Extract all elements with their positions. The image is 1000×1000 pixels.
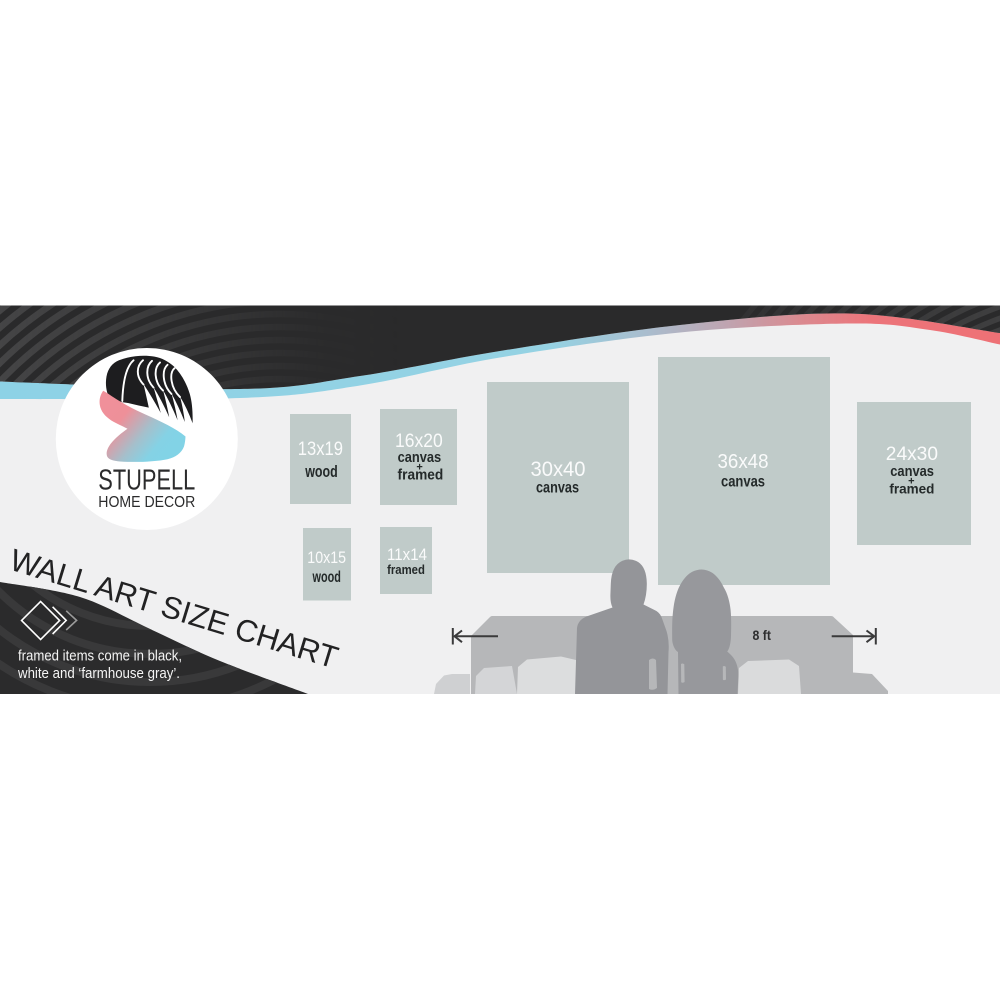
svg-text:16x20: 16x20 xyxy=(395,431,443,452)
svg-text:STUPELL: STUPELL xyxy=(98,465,195,497)
svg-text:framed: framed xyxy=(889,482,934,497)
svg-text:wood: wood xyxy=(312,569,341,586)
svg-text:13x19: 13x19 xyxy=(298,439,343,460)
svg-text:canvas: canvas xyxy=(536,480,579,497)
svg-text:36x48: 36x48 xyxy=(718,451,769,473)
svg-text:white and ‘farmhouse gray’.: white and ‘farmhouse gray’. xyxy=(17,665,180,682)
svg-text:canvas: canvas xyxy=(721,474,765,491)
svg-text:30x40: 30x40 xyxy=(531,458,586,481)
svg-text:HOME DECOR: HOME DECOR xyxy=(98,494,195,511)
svg-text:8 ft: 8 ft xyxy=(753,628,772,643)
svg-text:framed: framed xyxy=(387,562,425,577)
svg-text:24x30: 24x30 xyxy=(886,444,938,465)
svg-text:framed: framed xyxy=(398,467,444,483)
svg-text:wood: wood xyxy=(305,462,338,481)
svg-text:framed items come in black,: framed items come in black, xyxy=(18,648,182,665)
svg-text:10x15: 10x15 xyxy=(307,548,346,567)
